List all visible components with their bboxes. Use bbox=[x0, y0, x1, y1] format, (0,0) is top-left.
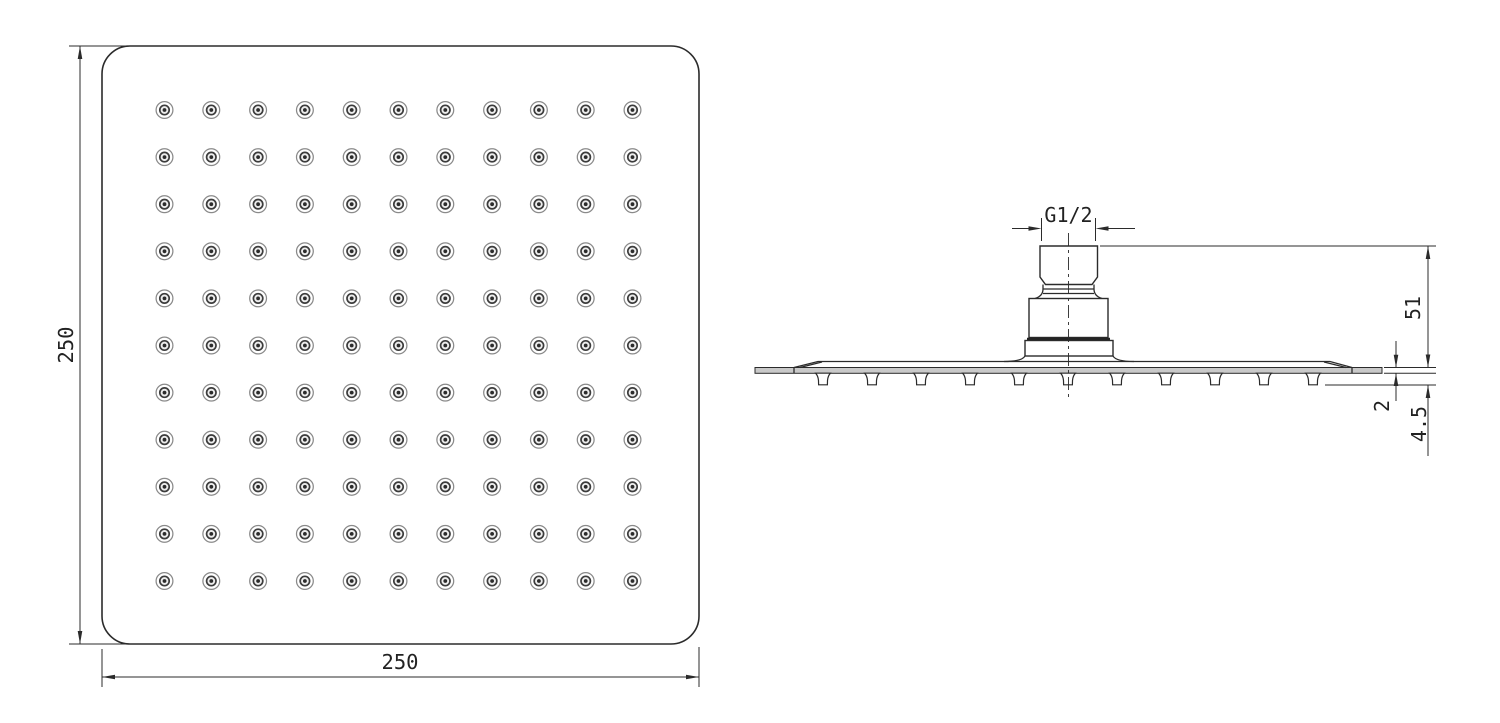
arrowhead-up bbox=[1394, 373, 1399, 386]
spray-hole bbox=[437, 243, 454, 260]
spray-hole bbox=[250, 478, 267, 495]
arrowhead-up bbox=[78, 46, 83, 59]
spray-hole bbox=[343, 102, 360, 119]
spray-hole bbox=[250, 337, 267, 354]
spray-hole bbox=[343, 149, 360, 166]
spray-hole bbox=[577, 196, 594, 213]
spray-hole bbox=[484, 431, 501, 448]
spray-hole bbox=[297, 149, 314, 166]
spray-hole bbox=[343, 526, 360, 543]
spray-hole bbox=[390, 526, 407, 543]
spray-hole bbox=[390, 290, 407, 307]
spray-hole bbox=[297, 384, 314, 401]
spray-hole bbox=[390, 431, 407, 448]
spray-hole bbox=[531, 243, 548, 260]
frame-profile bbox=[794, 362, 1352, 368]
spray-hole bbox=[577, 149, 594, 166]
spray-hole bbox=[531, 526, 548, 543]
nozzle-tip bbox=[1159, 373, 1174, 385]
spray-hole bbox=[297, 478, 314, 495]
spray-hole bbox=[577, 478, 594, 495]
spray-hole bbox=[624, 384, 641, 401]
spray-hole bbox=[203, 573, 220, 590]
spray-hole bbox=[390, 384, 407, 401]
height-dimension-51: 51 bbox=[1401, 246, 1430, 368]
spray-hole bbox=[343, 431, 360, 448]
spray-hole bbox=[484, 149, 501, 166]
spray-hole bbox=[484, 243, 501, 260]
spray-hole bbox=[577, 573, 594, 590]
spray-hole bbox=[250, 431, 267, 448]
spray-hole bbox=[250, 102, 267, 119]
spray-hole bbox=[297, 431, 314, 448]
spray-hole bbox=[531, 337, 548, 354]
spray-hole bbox=[343, 290, 360, 307]
top-view: 250 250 bbox=[54, 46, 699, 687]
spray-hole bbox=[297, 337, 314, 354]
spray-hole bbox=[531, 149, 548, 166]
spray-hole bbox=[390, 102, 407, 119]
spray-hole bbox=[156, 243, 173, 260]
spray-hole bbox=[624, 290, 641, 307]
spray-hole bbox=[343, 243, 360, 260]
arrowhead-left bbox=[102, 675, 115, 680]
spray-hole bbox=[437, 478, 454, 495]
spray-hole bbox=[297, 243, 314, 260]
spray-hole bbox=[156, 149, 173, 166]
spray-hole bbox=[531, 384, 548, 401]
spray-hole bbox=[156, 290, 173, 307]
arrowhead-up bbox=[1426, 246, 1431, 259]
spray-hole bbox=[343, 573, 360, 590]
side-view: G1/2 51 2 4.5 bbox=[755, 203, 1436, 456]
spray-hole bbox=[390, 337, 407, 354]
spray-hole bbox=[531, 102, 548, 119]
spray-hole bbox=[156, 384, 173, 401]
spray-hole bbox=[250, 196, 267, 213]
spray-hole bbox=[297, 573, 314, 590]
spray-hole bbox=[390, 243, 407, 260]
arrowhead-left bbox=[1096, 226, 1109, 231]
neck-left bbox=[1035, 285, 1043, 299]
spray-hole bbox=[484, 196, 501, 213]
spray-hole bbox=[297, 290, 314, 307]
spray-hole bbox=[343, 196, 360, 213]
spray-hole bbox=[156, 573, 173, 590]
spray-hole bbox=[437, 431, 454, 448]
spray-hole bbox=[531, 431, 548, 448]
spray-hole bbox=[577, 337, 594, 354]
spray-hole bbox=[203, 337, 220, 354]
spray-hole bbox=[484, 526, 501, 543]
side-nozzles bbox=[816, 373, 1321, 385]
spray-hole bbox=[203, 196, 220, 213]
spray-hole bbox=[297, 196, 314, 213]
spray-hole bbox=[437, 102, 454, 119]
spray-hole bbox=[437, 337, 454, 354]
spray-hole bbox=[156, 196, 173, 213]
spray-hole bbox=[203, 149, 220, 166]
spray-hole bbox=[577, 243, 594, 260]
spray-hole bbox=[624, 243, 641, 260]
plate-thickness-dimension: 2 bbox=[1370, 341, 1398, 412]
height-51-label: 51 bbox=[1401, 296, 1425, 320]
spray-hole bbox=[250, 526, 267, 543]
spray-hole bbox=[390, 478, 407, 495]
spray-hole bbox=[437, 573, 454, 590]
spray-hole bbox=[390, 573, 407, 590]
spray-hole bbox=[484, 290, 501, 307]
arrowhead-down bbox=[1394, 355, 1399, 368]
arrowhead-down bbox=[1426, 355, 1431, 368]
spray-hole bbox=[577, 384, 594, 401]
arrowhead-right bbox=[686, 675, 699, 680]
top-view-width-dimension: 250 bbox=[102, 647, 699, 687]
base-flare-left bbox=[1004, 356, 1025, 362]
nozzle-tip bbox=[816, 373, 831, 385]
spray-hole bbox=[250, 149, 267, 166]
overall-thickness-dimension: 4.5 bbox=[1407, 385, 1431, 456]
spray-hole bbox=[577, 290, 594, 307]
spray-hole bbox=[531, 290, 548, 307]
nozzle-tip bbox=[1306, 373, 1321, 385]
width-dimension-label: 250 bbox=[381, 650, 418, 674]
arrowhead-down bbox=[78, 631, 83, 644]
spray-hole bbox=[203, 290, 220, 307]
spray-hole bbox=[343, 478, 360, 495]
spray-hole bbox=[250, 384, 267, 401]
nozzle-tip bbox=[914, 373, 929, 385]
spray-hole bbox=[484, 337, 501, 354]
spray-hole bbox=[624, 526, 641, 543]
spray-hole bbox=[343, 337, 360, 354]
spray-hole bbox=[156, 478, 173, 495]
connector-collar bbox=[1025, 341, 1113, 357]
nozzle-tip bbox=[1012, 373, 1027, 385]
thread-dimension-label: G1/2 bbox=[1044, 203, 1092, 227]
spray-hole bbox=[577, 431, 594, 448]
spray-hole bbox=[624, 337, 641, 354]
spray-hole bbox=[484, 102, 501, 119]
spray-hole bbox=[531, 478, 548, 495]
spray-hole bbox=[156, 526, 173, 543]
spray-hole bbox=[531, 196, 548, 213]
thread-dimension: G1/2 bbox=[1012, 203, 1135, 241]
plate-thickness-label: 2 bbox=[1370, 400, 1394, 412]
spray-hole bbox=[203, 384, 220, 401]
spray-hole bbox=[156, 431, 173, 448]
spray-hole bbox=[297, 102, 314, 119]
spray-hole bbox=[250, 573, 267, 590]
spray-hole bbox=[624, 102, 641, 119]
spray-hole bbox=[203, 431, 220, 448]
spray-hole bbox=[297, 526, 314, 543]
spray-hole bbox=[437, 384, 454, 401]
nozzle-tip bbox=[865, 373, 880, 385]
spray-hole bbox=[484, 573, 501, 590]
spray-hole bbox=[203, 102, 220, 119]
spray-hole bbox=[624, 149, 641, 166]
spray-hole bbox=[437, 196, 454, 213]
spray-hole bbox=[437, 290, 454, 307]
spray-hole bbox=[484, 478, 501, 495]
spray-hole bbox=[624, 573, 641, 590]
spray-hole bbox=[437, 149, 454, 166]
spray-hole bbox=[390, 196, 407, 213]
spray-hole bbox=[203, 243, 220, 260]
nozzle-tip bbox=[963, 373, 978, 385]
spray-hole bbox=[390, 149, 407, 166]
nozzle-tip bbox=[1257, 373, 1272, 385]
drawing-canvas: 250 250 bbox=[0, 0, 1500, 723]
technical-drawing: 250 250 bbox=[0, 0, 1500, 723]
spray-hole bbox=[484, 384, 501, 401]
spray-hole bbox=[343, 384, 360, 401]
spray-hole bbox=[624, 431, 641, 448]
nozzle-tip bbox=[1061, 373, 1076, 385]
spray-hole bbox=[156, 102, 173, 119]
spray-hole bbox=[577, 102, 594, 119]
spray-hole bbox=[250, 243, 267, 260]
spray-hole bbox=[156, 337, 173, 354]
arrowhead-up bbox=[1426, 385, 1431, 398]
spray-hole bbox=[624, 196, 641, 213]
spray-hole bbox=[437, 526, 454, 543]
spray-hole bbox=[624, 478, 641, 495]
base-flare-right bbox=[1113, 356, 1134, 362]
overall-thickness-label: 4.5 bbox=[1407, 406, 1431, 442]
nozzle-tip bbox=[1110, 373, 1125, 385]
spray-hole bbox=[577, 526, 594, 543]
nozzle-tip bbox=[1208, 373, 1223, 385]
spray-hole bbox=[203, 478, 220, 495]
neck-right bbox=[1094, 285, 1102, 299]
spray-hole bbox=[531, 573, 548, 590]
spray-hole bbox=[250, 290, 267, 307]
arrowhead-right bbox=[1029, 226, 1042, 231]
spray-hole bbox=[203, 526, 220, 543]
height-dimension-label: 250 bbox=[54, 326, 78, 363]
